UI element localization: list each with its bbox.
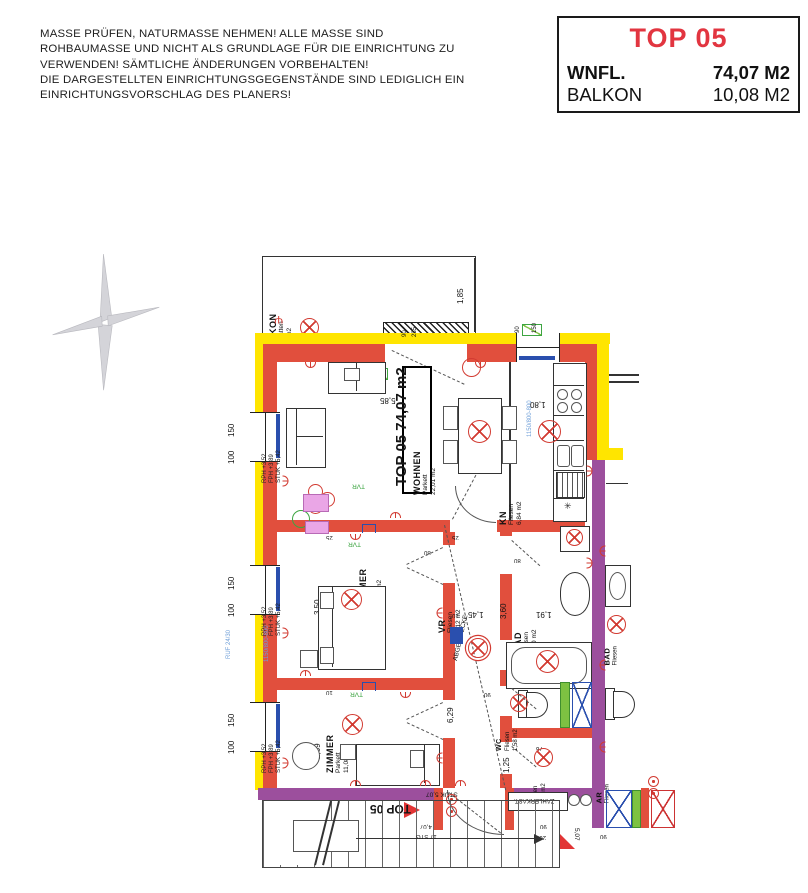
nightstand — [340, 744, 356, 760]
pillow — [320, 592, 334, 609]
cabinet-knob — [568, 794, 580, 806]
apartment-label: TOP 05 74,07 m2 — [397, 367, 406, 486]
wall-bracket-icon — [362, 682, 376, 691]
bath-tap-icon — [536, 650, 559, 673]
dim-neighbor-door: 90 — [600, 832, 607, 839]
room-label-wc: WC Fliesen 1,58 m2 — [495, 729, 520, 751]
wall-right-insulation — [597, 333, 609, 460]
dim-balcony-depth: 1,85 — [456, 288, 465, 304]
door-swing — [511, 746, 536, 767]
doorbell-icon — [648, 788, 659, 799]
neighbor-toilet-bowl — [613, 691, 635, 718]
exterior-line — [606, 483, 628, 484]
exterior-line — [609, 374, 639, 376]
stair-steps-label: 17 STG — [416, 832, 437, 839]
shaft-door-green — [560, 682, 570, 728]
socket-icon — [400, 692, 411, 698]
socket-icon — [475, 362, 486, 368]
level-rph: RPH +3,52 — [262, 740, 269, 773]
installation-shaft — [606, 790, 632, 828]
window-spec-2: 1150/800-800 — [264, 625, 271, 662]
ceiling-light-double-icon — [468, 638, 488, 658]
cabinet-knob — [580, 794, 592, 806]
socket-icon — [600, 742, 606, 753]
exterior-line — [609, 381, 639, 383]
socket-icon — [350, 780, 361, 786]
dim-vr-w: 1,45 — [468, 610, 484, 619]
installation-shaft — [572, 682, 592, 728]
ceiling-light-icon — [341, 589, 362, 610]
wall-cabinet — [305, 521, 329, 534]
sink-bowl — [557, 445, 570, 467]
dim-window3-150: 150 — [227, 714, 236, 727]
dim-window2-150: 150 — [227, 577, 236, 590]
chair — [502, 406, 517, 430]
room-name: ZIMMER — [325, 735, 335, 774]
level-fph: FPH +3,89 — [269, 450, 276, 483]
socket-icon — [305, 362, 316, 368]
neighbor-washbasin-bowl — [609, 572, 626, 600]
washing-machine-cross-icon — [566, 529, 583, 546]
door-opening-bad — [500, 536, 512, 574]
bed-2-headline — [424, 745, 425, 783]
chair — [502, 440, 517, 464]
door-swing — [406, 702, 443, 720]
ceiling-light-icon — [510, 694, 528, 712]
tvr-label: TVR — [352, 482, 365, 490]
ceiling-light-icon — [538, 420, 561, 443]
ruf-annotation: RUF 24/30 — [226, 630, 233, 659]
dim-25: 25 — [326, 533, 333, 540]
dim-kitchen-window-90: 90 — [515, 326, 522, 333]
counter-divider — [554, 415, 584, 416]
room-floor: Fliesen — [508, 502, 516, 526]
dim-top-width: 5,85 — [380, 396, 396, 405]
window-level-3: RPH +3,52 FPH +3,89 STUK +5,42 — [262, 740, 283, 773]
lamp-fork-icon: Ψ — [274, 314, 283, 323]
stair-run-label: 4,07 — [420, 822, 432, 829]
shaft-door-green — [632, 790, 641, 828]
ceiling-light-icon — [468, 420, 491, 443]
balcony-dim-line — [474, 258, 475, 332]
dim-window2-100: 100 — [227, 604, 236, 617]
counter-divider — [554, 385, 584, 386]
toilet-bowl — [526, 692, 548, 718]
tvr-label: TVR — [350, 690, 363, 698]
electrical-panel — [450, 627, 463, 644]
window-level-1: RPH +3,52 FPH +3,89 STUK +5,42 — [262, 450, 283, 483]
dim-bad-w: 1,91 — [536, 610, 552, 619]
level-fph: FPH +3,89 — [269, 740, 276, 773]
stair-arrow-head — [534, 834, 544, 844]
level-rph: RPH +3,52 — [262, 450, 269, 483]
socket-icon — [300, 670, 311, 676]
socket-icon — [600, 546, 606, 557]
dim-door-bad: 80 — [514, 556, 521, 563]
door-arc — [455, 486, 496, 523]
dim-window1-100: 100 — [227, 451, 236, 464]
dim-10b: 10 — [326, 688, 333, 695]
sofa-line — [297, 436, 323, 437]
wall-cabinet — [303, 494, 329, 512]
ceiling-light-icon — [534, 748, 553, 767]
cooktop-burner — [557, 402, 568, 413]
room-area: 6,84 m2 — [516, 502, 524, 526]
ceiling-light-icon — [607, 615, 626, 634]
socket-icon — [600, 660, 606, 671]
fridge — [556, 472, 585, 498]
floor-plan: 1,85 BALKON Bet. Platten 10,08 m2 Ψ 90 2… — [0, 0, 808, 893]
socket-icon — [455, 780, 466, 786]
socket-icon — [390, 512, 401, 518]
dim-balcony-door: 90 — [402, 330, 409, 337]
counter-divider — [554, 440, 584, 441]
cooktop-burner — [571, 402, 582, 413]
room-floor: Fliesen — [505, 729, 513, 751]
wall-party-right — [592, 460, 605, 790]
dim-kn-w: 1,80 — [530, 400, 546, 409]
cooktop-burner — [571, 389, 582, 400]
dim-10: 10 — [452, 611, 459, 618]
room-name: AR — [595, 784, 605, 803]
dim-vr-len: 6,29 — [446, 707, 455, 723]
room-floor: Fliesen — [613, 646, 621, 665]
room-name: WOHNEN — [412, 451, 422, 495]
room-label-wohnen: WOHNEN Parkett 22,01 m2 — [412, 451, 437, 495]
room-label-kn: KN Fliesen 6,84 m2 — [498, 502, 523, 526]
wall-right-insulation-corner — [597, 448, 623, 460]
stair-arrow-line — [356, 838, 534, 839]
tv-set — [344, 368, 360, 381]
socket-icon — [283, 628, 289, 639]
socket-icon — [283, 476, 289, 487]
dim-window1-150: 150 — [227, 424, 236, 437]
dim-balcony-door-2: 235 — [412, 327, 419, 337]
nightstand — [300, 650, 318, 668]
washbasin-bad — [560, 572, 590, 616]
counter-divider — [554, 498, 584, 499]
stuk-507-label: 5,07 — [573, 828, 581, 841]
wall-wc-ar — [512, 728, 592, 738]
room-name: KN — [498, 502, 508, 526]
socket-icon — [283, 758, 289, 769]
socket-icon — [420, 780, 431, 786]
door-swing — [407, 567, 444, 585]
dim-kitchen-window-150: 150 — [532, 323, 539, 333]
pillow — [410, 750, 424, 768]
doorbell-icon — [648, 776, 659, 787]
dim-bad-h: 3,60 — [499, 603, 508, 619]
dim-ar-h: 1,25 — [502, 757, 511, 773]
sofa — [286, 408, 326, 468]
counter-divider — [554, 470, 584, 471]
dim-door-wc: 90 — [484, 690, 491, 697]
socket-icon — [437, 753, 443, 764]
tvr-label: TVR — [348, 540, 361, 548]
dim-window3-100: 100 — [227, 741, 236, 754]
side-table-round — [292, 742, 320, 770]
ceiling-light-icon — [342, 714, 363, 735]
room-area: 22,01 m2 — [430, 451, 438, 495]
cooktop-burner — [557, 389, 568, 400]
wall-bracket-icon — [362, 524, 376, 533]
chair — [443, 440, 458, 464]
room-floor: Parkett — [422, 451, 430, 495]
socket-icon — [437, 608, 443, 619]
sofa-line — [296, 409, 297, 465]
window-sill — [519, 356, 555, 360]
chair — [443, 406, 458, 430]
dim-25b: 25 — [452, 533, 459, 540]
sink-bowl — [571, 445, 584, 467]
wall-bottom-stairwell — [258, 788, 434, 800]
wall-zimmer1-zimmer2 — [276, 678, 443, 690]
pillow — [320, 647, 334, 664]
fridge-snowflake-icon: ✳ — [564, 502, 572, 511]
door-swing — [407, 722, 444, 740]
